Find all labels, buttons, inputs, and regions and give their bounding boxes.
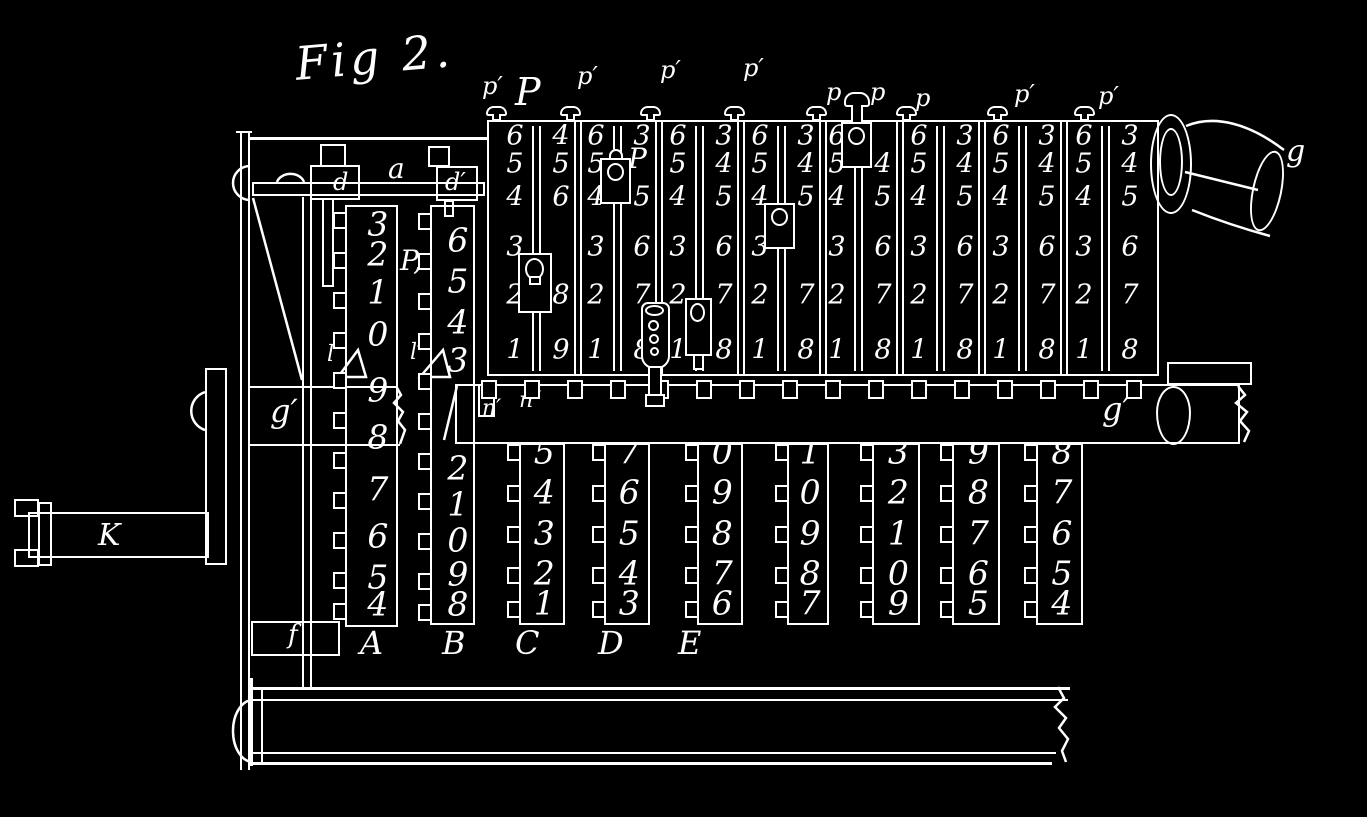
panel-left-digit: 2 <box>1075 280 1092 311</box>
parked-knob-stem <box>730 114 739 121</box>
stop-pin-head <box>690 303 705 322</box>
rack-tooth <box>940 485 954 502</box>
panel-left-digit: 1 <box>751 335 768 366</box>
slot-rod-right-line <box>539 126 541 371</box>
rack-digit: 5 <box>619 514 640 553</box>
rack-tooth <box>333 532 347 549</box>
bar-notch <box>610 380 626 399</box>
rack-digit: 7 <box>619 443 640 465</box>
bottle-stop-dot <box>650 347 659 356</box>
column-divider-line <box>737 122 739 374</box>
rack-digit: 5 <box>534 443 555 465</box>
column-divider-line <box>984 122 986 374</box>
parked-knob-stem <box>812 114 821 121</box>
rack-label: B <box>442 624 466 662</box>
panel-right-digit: 8 <box>1121 335 1138 366</box>
panel-left-digit: 3 <box>910 232 927 263</box>
bar-notch <box>911 380 927 399</box>
rack-tooth <box>1024 485 1038 502</box>
panel-right-digit: 6 <box>874 232 891 263</box>
rack-digit: 9 <box>712 473 733 512</box>
rack-digit: 8 <box>712 514 733 553</box>
bar-notch <box>524 380 540 399</box>
rack-tooth <box>592 567 606 584</box>
bar-notch <box>739 380 755 399</box>
rack-tooth <box>333 412 347 429</box>
column-divider-line <box>978 122 980 374</box>
rack-digit: 2 <box>447 449 468 488</box>
parked-knob-stem <box>993 114 1002 121</box>
bottle-stop-dot <box>649 334 659 344</box>
rack-digit: 5 <box>968 584 989 623</box>
panel-left-digit: 2 <box>587 280 604 311</box>
rack-tooth <box>685 601 699 618</box>
rack-digit: 0 <box>800 473 821 512</box>
rack-digit: 1 <box>367 273 388 312</box>
slider-knob-bump <box>609 149 623 160</box>
panel-top-label: p′ <box>743 54 764 82</box>
generated-parts: 6455463281963545362718635445362718635445… <box>0 0 1367 817</box>
panel-left-digit: 1 <box>506 335 523 366</box>
panel-right-digit: 5 <box>633 182 650 213</box>
rack-digit-clip: 1 <box>787 443 829 465</box>
rack-digit-clip: 3 <box>872 443 920 465</box>
rack-tooth <box>685 526 699 543</box>
rack-digit: 6 <box>619 473 640 512</box>
parked-knob-stem <box>902 114 911 121</box>
rack-tooth <box>860 526 874 543</box>
bottle-stop-dot <box>648 320 659 331</box>
rack-tooth <box>940 526 954 543</box>
rack-digit: 7 <box>800 584 821 623</box>
rack-digit: 3 <box>447 341 468 380</box>
rack-tooth <box>507 485 521 502</box>
panel-right-digit: 6 <box>633 232 650 263</box>
column-divider-line <box>580 122 582 374</box>
rack-digit: 7 <box>367 470 388 509</box>
rack-digit: 1 <box>447 485 468 524</box>
panel-right-digit: 4 <box>874 149 891 180</box>
panel-top-label: p <box>915 84 930 112</box>
rack-digit: 3 <box>888 443 909 465</box>
rack-tooth <box>592 485 606 502</box>
panel-left-digit: 3 <box>587 232 604 263</box>
panel-top-label: p <box>870 78 885 106</box>
rack-tooth <box>685 567 699 584</box>
rack-tooth <box>775 526 789 543</box>
panel-left-digit: 1 <box>828 335 845 366</box>
panel-right-digit: 8 <box>956 335 973 366</box>
rack-digit-clip: 9 <box>952 443 1000 465</box>
panel-right-digit: 5 <box>797 182 814 213</box>
column-divider-line <box>902 122 904 374</box>
column-divider-line <box>1060 122 1062 374</box>
slot-rod-left-line <box>532 126 534 371</box>
rack-tooth <box>775 485 789 502</box>
slot-rod-left-line <box>1018 126 1020 371</box>
rack-tooth <box>418 253 432 270</box>
rack-digit: 1 <box>800 443 821 465</box>
slot-rod-right-line <box>1108 126 1110 371</box>
bottle-stop-foot <box>645 394 665 407</box>
rack-label: D <box>598 624 624 662</box>
rack-tooth <box>418 604 432 621</box>
rack-digit: 3 <box>619 584 640 623</box>
panel-left-digit: 4 <box>669 182 686 213</box>
rack-tooth <box>333 292 347 309</box>
rack-tooth <box>940 601 954 618</box>
rack-digit: 0 <box>712 443 733 465</box>
slider-knob-head <box>848 127 865 145</box>
bottle-stop-neck <box>648 366 662 397</box>
parked-knob-stem <box>1080 114 1089 121</box>
stop-pin-tab <box>693 354 704 370</box>
panel-left-digit: 2 <box>828 280 845 311</box>
rack-digit: 5 <box>447 262 468 301</box>
panel-right-digit: 5 <box>956 182 973 213</box>
rack-tooth <box>333 372 347 389</box>
panel-right-digit: 7 <box>1038 280 1055 311</box>
panel-left-digit: 3 <box>669 232 686 263</box>
slider-knob-base <box>529 276 541 285</box>
panel-right-digit: 3 <box>715 121 732 152</box>
rack-digit: 4 <box>534 473 555 512</box>
panel-left-digit: 6 <box>506 121 523 152</box>
rack-tooth <box>418 493 432 510</box>
rack-tooth <box>418 293 432 310</box>
bar-notch <box>782 380 798 399</box>
panel-top-label: p′ <box>1098 82 1119 110</box>
panel-right-digit: 7 <box>956 280 973 311</box>
panel-right-digit: 8 <box>715 335 732 366</box>
bar-notch <box>1083 380 1099 399</box>
rack-tooth <box>775 601 789 618</box>
panel-left-digit: 4 <box>992 182 1009 213</box>
rack-tooth <box>333 332 347 349</box>
panel-right-digit: 5 <box>552 149 569 180</box>
panel-left-digit: 1 <box>587 335 604 366</box>
panel-left-digit: 6 <box>910 121 927 152</box>
slot-rod-left-line <box>936 126 938 371</box>
rack-digit: 9 <box>367 371 388 410</box>
panel-right-digit: 5 <box>874 182 891 213</box>
rack-tooth <box>1024 567 1038 584</box>
panel-right-digit: 7 <box>874 280 891 311</box>
panel-right-digit: 3 <box>1038 121 1055 152</box>
panel-left-digit: 1 <box>1075 335 1092 366</box>
panel-right-digit: 3 <box>956 121 973 152</box>
rack-digit: 4 <box>367 585 388 624</box>
rack-tooth <box>685 485 699 502</box>
rack-tooth <box>507 601 521 618</box>
panel-right-digit: 5 <box>1121 182 1138 213</box>
rack-digit: 8 <box>968 473 989 512</box>
panel-right-digit: 3 <box>1121 121 1138 152</box>
rack-tooth <box>860 567 874 584</box>
rack-tooth <box>860 601 874 618</box>
column-divider-line <box>896 122 898 374</box>
panel-right-digit: 4 <box>1038 149 1055 180</box>
rack-digit-clip: 5 <box>519 443 565 465</box>
panel-right-digit: 6 <box>715 232 732 263</box>
panel-right-digit: 4 <box>715 149 732 180</box>
panel-right-digit: 8 <box>797 335 814 366</box>
rack-tooth <box>507 526 521 543</box>
panel-left-digit: 4 <box>506 182 523 213</box>
column-divider-line <box>819 122 821 374</box>
rack-tooth <box>860 485 874 502</box>
rack-tooth <box>333 492 347 509</box>
panel-right-digit: 8 <box>552 280 569 311</box>
panel-left-digit: 1 <box>992 335 1009 366</box>
rack-tooth <box>418 533 432 550</box>
rack-tooth <box>775 567 789 584</box>
panel-left-digit: 5 <box>669 149 686 180</box>
panel-right-digit: 5 <box>1038 182 1055 213</box>
parked-knob-stem <box>492 114 501 121</box>
rack-tooth <box>333 252 347 269</box>
rack-digit: 9 <box>968 443 989 465</box>
panel-left-digit: 3 <box>1075 232 1092 263</box>
rack-tooth <box>333 603 347 620</box>
panel-left-digit: 6 <box>751 121 768 152</box>
rack-tooth <box>1024 526 1038 543</box>
rack-digit: 6 <box>447 221 468 260</box>
bar-notch <box>1040 380 1056 399</box>
rack-tooth <box>592 601 606 618</box>
rack-digit: 7 <box>968 514 989 553</box>
panel-left-digit: 5 <box>910 149 927 180</box>
rack-digit: 1 <box>888 514 909 553</box>
slot-rod-right-line <box>1025 126 1027 371</box>
panel-right-digit: 6 <box>1038 232 1055 263</box>
rack-tooth <box>940 567 954 584</box>
rack-tooth <box>333 572 347 589</box>
parked-knob-stem <box>566 114 575 121</box>
panel-left-digit: 2 <box>910 280 927 311</box>
panel-right-digit: 5 <box>715 182 732 213</box>
parked-knob-stem <box>646 114 655 121</box>
panel-right-digit: 6 <box>1121 232 1138 263</box>
panel-left-digit: 5 <box>1075 149 1092 180</box>
panel-left-digit: 2 <box>992 280 1009 311</box>
panel-left-digit: 6 <box>992 121 1009 152</box>
panel-right-digit: 9 <box>552 335 569 366</box>
rack-digit: 8 <box>1051 443 1072 465</box>
rack-digit-clip: 8 <box>1036 443 1083 465</box>
bar-notch <box>997 380 1013 399</box>
bar-notch <box>696 380 712 399</box>
rack-label: C <box>515 624 539 662</box>
panel-right-digit: 4 <box>1121 149 1138 180</box>
rack-tooth <box>507 567 521 584</box>
panel-right-digit: 3 <box>633 121 650 152</box>
slider-mushroom-stem <box>851 105 863 124</box>
rack-tooth <box>592 526 606 543</box>
column-divider-line <box>743 122 745 374</box>
rack-digit: 1 <box>534 584 555 623</box>
panel-top-label: p <box>826 78 841 106</box>
rack-digit: 3 <box>534 514 555 553</box>
rack-label: E <box>678 624 701 662</box>
rack-digit: 9 <box>800 514 821 553</box>
rack-digit: 8 <box>447 585 468 624</box>
panel-left-digit: 6 <box>587 121 604 152</box>
bar-notch <box>567 380 583 399</box>
panel-right-digit: 8 <box>874 335 891 366</box>
panel-right-digit: 6 <box>552 182 569 213</box>
panel-right-digit: 4 <box>552 121 569 152</box>
slider-knob-head <box>771 208 788 226</box>
rack-digit: 8 <box>367 418 388 457</box>
rack-digit: 4 <box>1051 584 1072 623</box>
rack-digit-clip: 0 <box>697 443 743 465</box>
bar-notch <box>825 380 841 399</box>
panel-right-digit: 8 <box>1038 335 1055 366</box>
panel-left-digit: 2 <box>751 280 768 311</box>
rack-tooth <box>1024 601 1038 618</box>
panel-right-digit: 7 <box>797 280 814 311</box>
rack-digit: 9 <box>888 584 909 623</box>
rack-tooth <box>333 212 347 229</box>
panel-top-label: p′ <box>660 56 681 84</box>
rack-tooth <box>418 573 432 590</box>
rack-digit: 4 <box>447 303 468 342</box>
rack-label: A <box>360 624 383 662</box>
panel-top-label: p′ <box>1014 80 1035 108</box>
bottle-stop-rim <box>645 305 664 316</box>
panel-left-digit: 4 <box>910 182 927 213</box>
panel-left-digit: 4 <box>1075 182 1092 213</box>
slider-knob-head <box>607 163 624 181</box>
panel-left-digit: 1 <box>910 335 927 366</box>
column-divider-line <box>574 122 576 374</box>
rack-digit: 6 <box>1051 514 1072 553</box>
bar-notch <box>868 380 884 399</box>
panel-left-digit: 6 <box>1075 121 1092 152</box>
panel-top-label: p′ <box>482 72 503 100</box>
rack-digit: 6 <box>367 517 388 556</box>
rack-tooth <box>418 373 432 390</box>
panel-right-digit: 4 <box>797 149 814 180</box>
rack-tooth <box>418 453 432 470</box>
rack-digit: 2 <box>888 473 909 512</box>
panel-left-digit: 3 <box>992 232 1009 263</box>
panel-right-digit: 3 <box>797 121 814 152</box>
bar-notch <box>481 380 497 399</box>
rack-digit: 2 <box>367 235 388 274</box>
panel-left-digit: 5 <box>506 149 523 180</box>
panel-right-digit: 7 <box>715 280 732 311</box>
panel-right-digit: 4 <box>956 149 973 180</box>
bar-notch <box>1126 380 1142 399</box>
bar-notch <box>954 380 970 399</box>
panel-left-digit: 3 <box>828 232 845 263</box>
panel-top-label: P <box>515 70 541 114</box>
rack-digit: 7 <box>1051 473 1072 512</box>
rack-tooth <box>418 413 432 430</box>
panel-left-digit: 5 <box>992 149 1009 180</box>
panel-top-label: p′ <box>577 62 598 90</box>
rack-tooth <box>418 333 432 350</box>
column-divider-line <box>1066 122 1068 374</box>
rack-digit: 6 <box>712 584 733 623</box>
slot-rod-left-line <box>1101 126 1103 371</box>
rack-tooth <box>333 452 347 469</box>
rack-digit: 0 <box>367 315 388 354</box>
panel-left-digit: 5 <box>751 149 768 180</box>
panel-left-digit: 4 <box>828 182 845 213</box>
rack-digit-clip: 7 <box>604 443 650 465</box>
column-divider-line <box>825 122 827 374</box>
panel-right-digit: 6 <box>956 232 973 263</box>
panel-right-digit: 7 <box>1121 280 1138 311</box>
panel-left-digit: 6 <box>669 121 686 152</box>
patent-drawing: Fig 2. a d d′ P, l l′ g′ K f P g′ n′ n″ <box>0 0 1367 817</box>
rack-tooth <box>418 213 432 230</box>
slot-rod-right-line <box>943 126 945 371</box>
